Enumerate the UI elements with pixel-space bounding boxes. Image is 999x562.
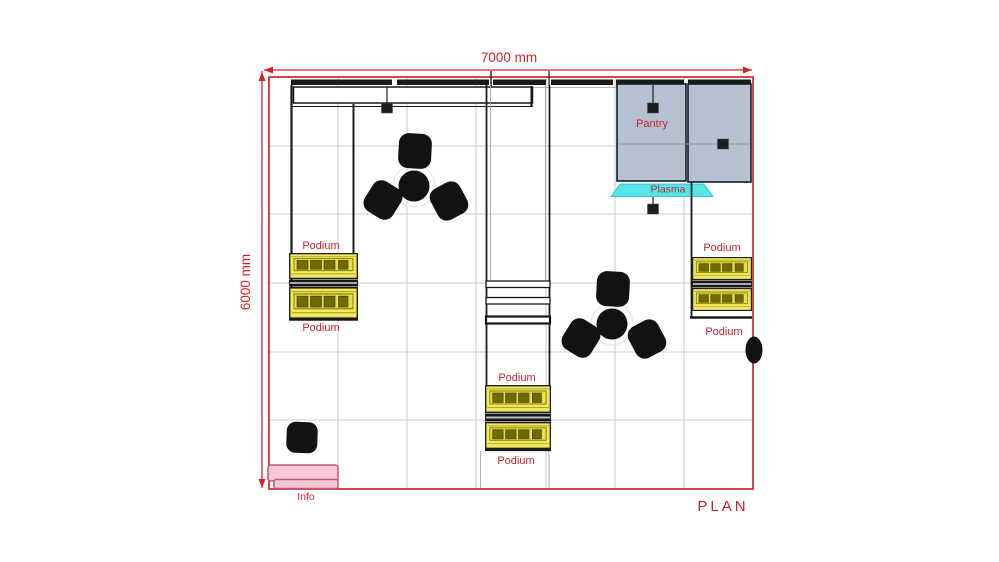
ceiling-light-icon — [382, 103, 393, 113]
podium-cabinet — [290, 254, 358, 279]
plasma-screen: Plasma — [611, 184, 713, 215]
podium-cabinet — [486, 386, 551, 413]
ceiling-light-icon — [648, 103, 659, 113]
podium-label: Podium — [497, 455, 534, 467]
info-desk: Info — [268, 465, 338, 503]
info-label: Info — [297, 491, 315, 503]
podium-label: Podium — [703, 242, 740, 254]
ceiling-light-icon — [718, 139, 729, 149]
podium-shelf-gap — [485, 414, 551, 422]
podium-group-left: Podium Podium — [289, 240, 358, 334]
podium-group-center: Podium Podium — [485, 372, 551, 467]
pantry-room-right — [688, 84, 751, 182]
dimension-label-width: 7000 mm — [481, 50, 537, 65]
ceiling-light-icon — [648, 204, 659, 214]
podium-shelf-gap — [692, 281, 752, 288]
podium-cabinet — [693, 289, 752, 311]
podium-cabinet — [486, 423, 551, 449]
pantry-area: Pantry — [617, 84, 751, 182]
dimension-label-height: 6000 mm — [238, 254, 253, 310]
podium-label: Podium — [705, 326, 742, 338]
floor-plan-canvas: 7000 mm 6000 mm — [0, 0, 999, 562]
podium-cabinet — [290, 288, 358, 318]
floor-plan-drawing: 7000 mm 6000 mm — [0, 0, 999, 562]
chair-icon — [746, 337, 763, 364]
pantry-room-left — [617, 84, 686, 181]
podium-label: Podium — [302, 322, 339, 334]
chair-icon — [286, 421, 318, 453]
plasma-label: Plasma — [650, 184, 685, 196]
podium-shelf-gap — [289, 280, 358, 287]
podium-label: Podium — [302, 240, 339, 252]
round-table-seating-cluster — [558, 271, 670, 363]
pantry-label: Pantry — [636, 118, 668, 130]
podium-label: Podium — [498, 372, 535, 384]
podium-group-right: Podium Podium — [692, 242, 752, 338]
header-beam — [294, 87, 533, 103]
plan-title: PLAN — [697, 498, 748, 515]
podium-cabinet — [693, 258, 752, 280]
